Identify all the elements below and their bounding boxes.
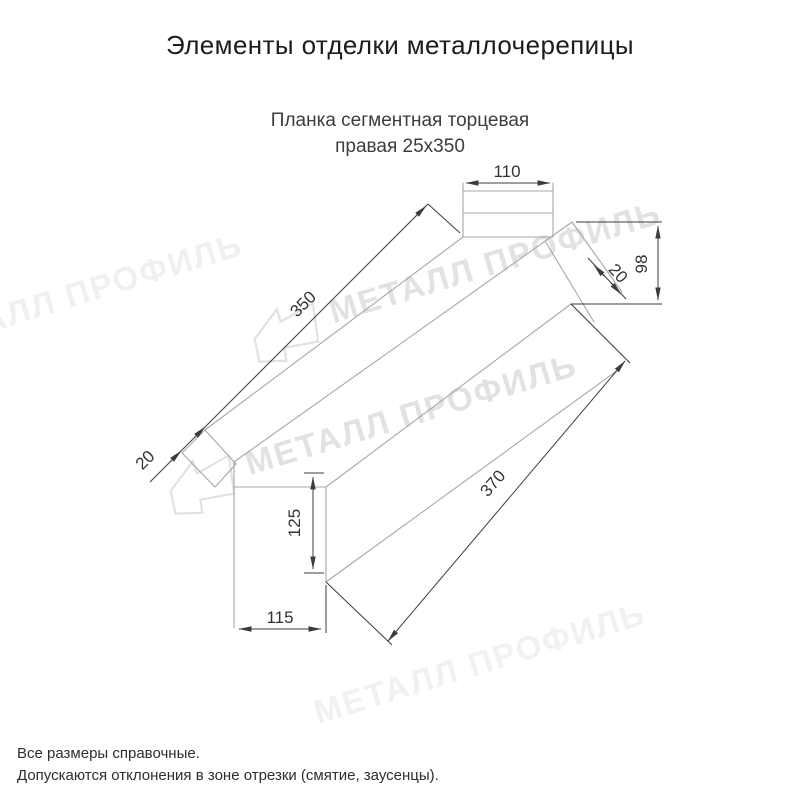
dimension-label-110: 110 bbox=[493, 162, 520, 181]
technical-drawing: МЕТАЛЛ ПРОФИЛЬ МЕТАЛЛ ПРОФИЛЬ МЕТАЛЛ ПРО… bbox=[0, 0, 800, 800]
dimension-label-125: 125 bbox=[285, 509, 304, 537]
dimension-label-20-left: 20 bbox=[132, 447, 159, 474]
metal-profil-logo-icon bbox=[162, 451, 242, 521]
watermark-lower: МЕТАЛЛ ПРОФИЛЬ bbox=[162, 346, 586, 521]
dimension-label-20-right: 20 bbox=[605, 260, 632, 287]
watermark-text: МЕТАЛЛ ПРОФИЛЬ bbox=[0, 225, 247, 361]
metal-profil-logo-icon bbox=[246, 299, 326, 369]
dimension-label-98: 98 bbox=[632, 255, 651, 274]
dimension-label-370: 370 bbox=[476, 466, 509, 500]
dimension-label-115: 115 bbox=[266, 608, 293, 627]
watermark-fragment-top: МЕТАЛЛ ПРОФИЛЬ bbox=[0, 225, 247, 361]
watermark-text: МЕТАЛЛ ПРОФИЛЬ bbox=[241, 346, 582, 482]
watermark: МЕТАЛЛ ПРОФИЛЬ МЕТАЛЛ ПРОФИЛЬ МЕТАЛЛ ПРО… bbox=[0, 194, 670, 731]
footer-note-2: Допускаются отклонения в зоне отрезки (с… bbox=[17, 765, 439, 787]
watermark-upper: МЕТАЛЛ ПРОФИЛЬ bbox=[246, 194, 670, 369]
footer-note-1: Все размеры справочные. bbox=[17, 743, 439, 765]
catalog-page: Элементы отделки металлочерепицы Планка … bbox=[0, 0, 800, 800]
watermark-text: МЕТАЛЛ ПРОФИЛЬ bbox=[325, 194, 666, 330]
footer-notes: Все размеры справочные. Допускаются откл… bbox=[17, 743, 439, 787]
